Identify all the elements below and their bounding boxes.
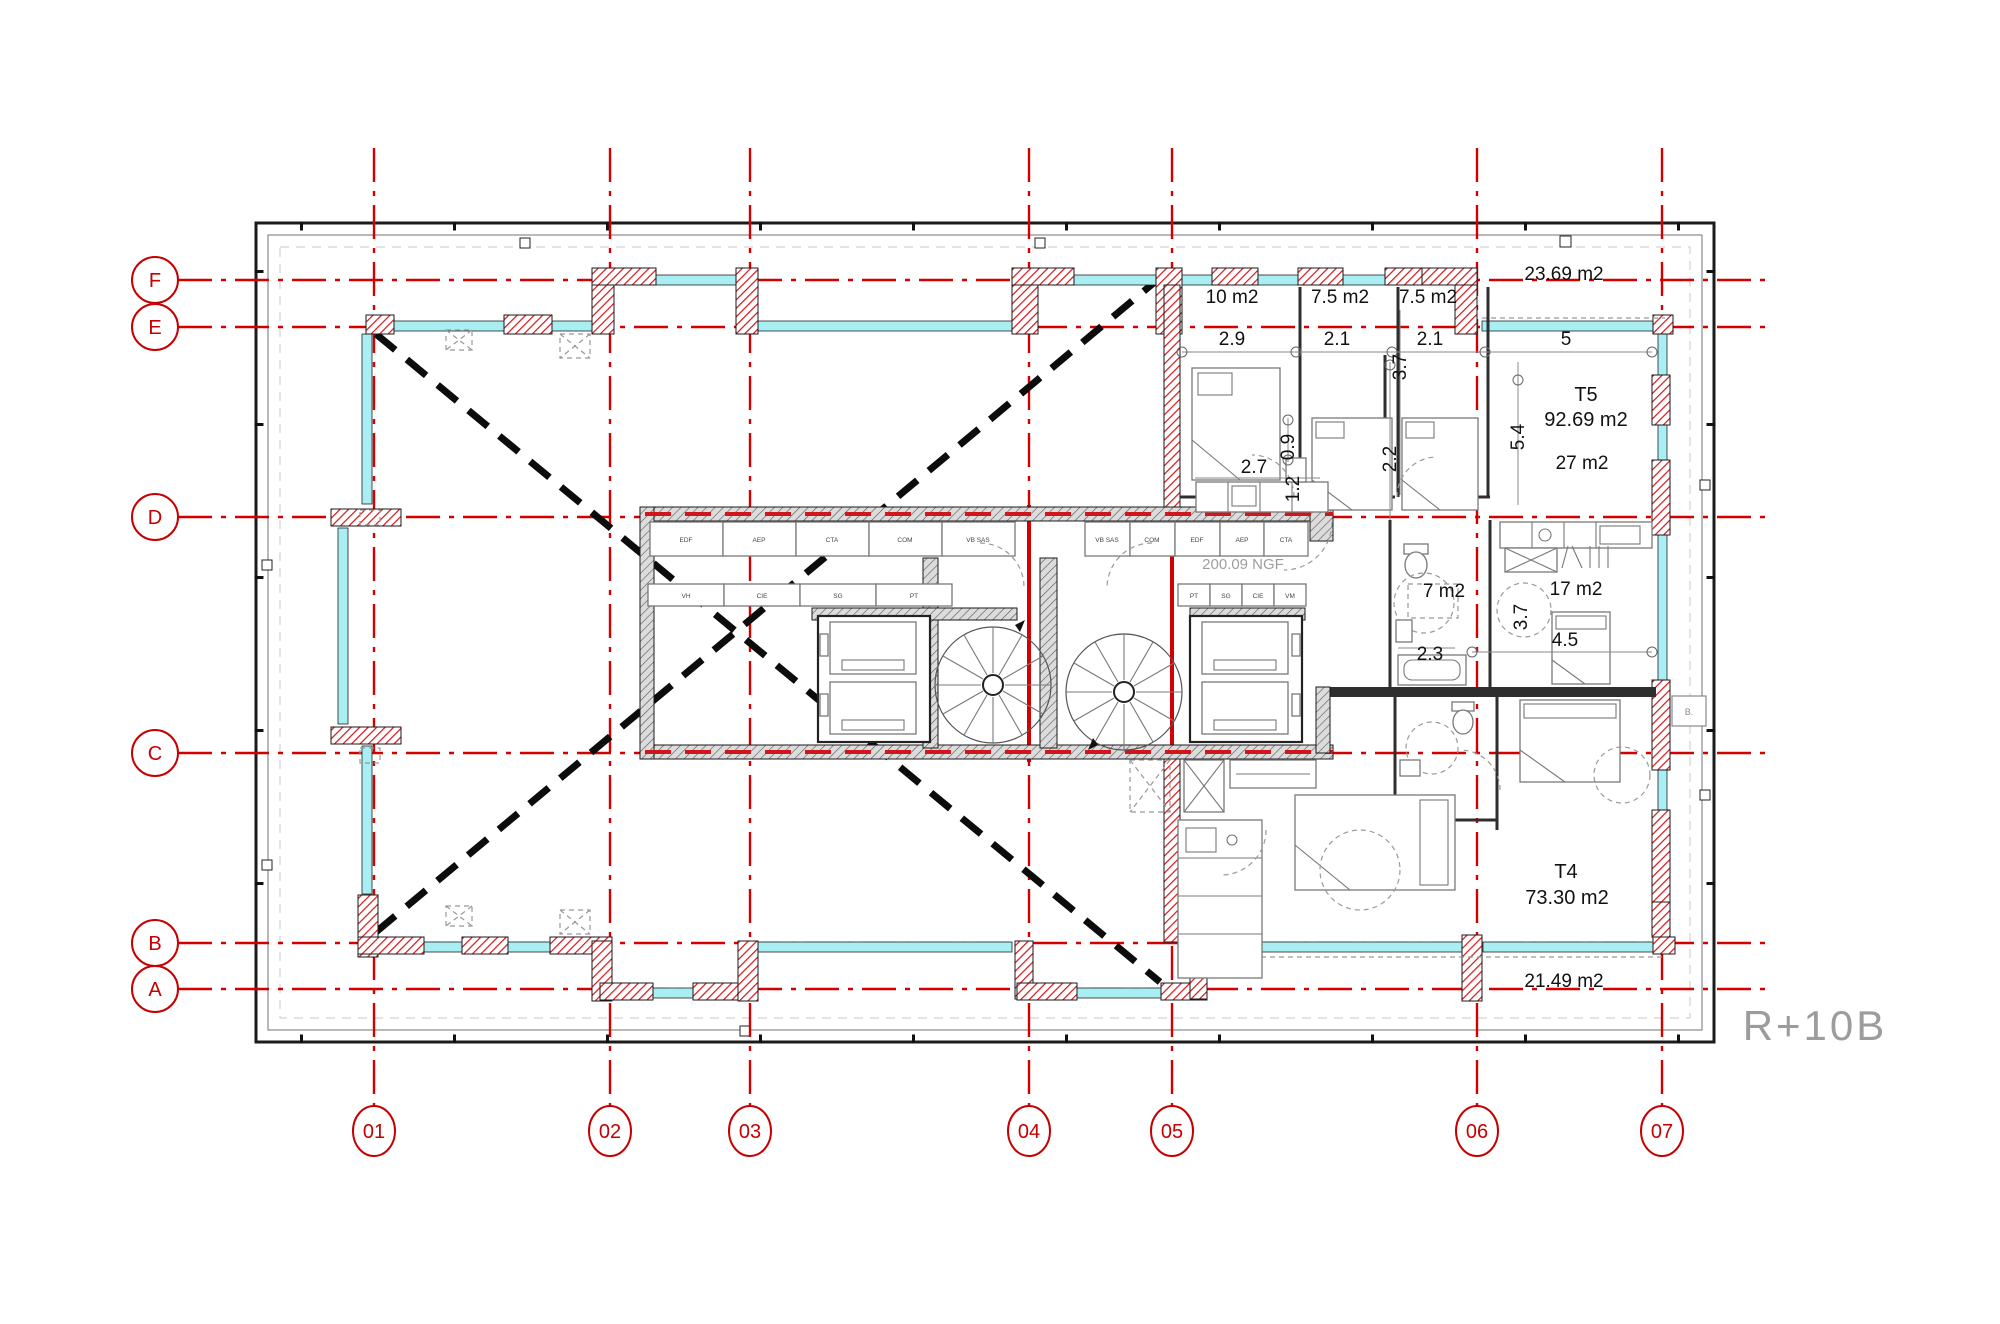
labels: 10 m2 7.5 m2 7.5 m2 23.69 m2 T5 92.69 m2… [1202,264,1887,1049]
elevator-bank-left [818,616,930,742]
room-label-terrace-south: 21.49 m2 [1524,971,1603,992]
duct-row1-right: VB SAS COM EDF AEP CTA [1085,522,1308,556]
dim-bathroom-w: 2.3 [1417,644,1443,665]
grid-col-label: 07 [1651,1121,1673,1143]
dim-bedroom-4-d: 3.7 [1511,604,1532,630]
duct-label: SG [1221,593,1230,600]
kitchen-counter-t5 [1500,522,1652,548]
grid-col-label: 06 [1466,1121,1488,1143]
bed-t4-main [1295,795,1455,890]
grid-row-label: C [148,743,162,765]
grid-bubble-col-05: 05 [1151,1106,1193,1156]
dim-living-h: 5.4 [1508,423,1529,450]
building-envelope [256,223,1714,1042]
duct-row2-right: PT SG CIE VM [1178,584,1306,606]
grid-col-label: 04 [1018,1121,1040,1143]
duct-label: CTA [1280,537,1293,544]
wardrobe-t5 [1505,546,1608,572]
room-label-bedroom-1: 10 m2 [1206,287,1259,308]
grid-bubble-col-02: 02 [589,1106,631,1156]
grid-bubble-col-04: 04 [1008,1106,1050,1156]
unit-label-t5: T5 [1574,384,1597,406]
duct-label: PT [1190,593,1198,600]
grid-row-label: B [148,933,161,955]
duct-label: CIE [757,593,769,600]
grid-bubble-row-e: E [132,304,178,350]
dim-living-w: 5 [1561,329,1572,350]
duct-label: VB SAS [1095,537,1119,544]
room-label-living: 27 m2 [1556,453,1609,474]
duct-label: VH [681,593,690,600]
dim-hall-h: 2.2 [1380,446,1401,472]
floor-plan: F E D C B A 01 02 [0,0,2000,1324]
grid-bubble-row-f: F [132,257,178,303]
grid-bubble-row-d: D [132,494,178,540]
dim-bedroom-3-h: 3.7 [1390,354,1411,380]
spiral-stair-left [935,620,1051,743]
dim-bedroom-1-w: 2.9 [1219,329,1245,350]
grid-row-label: D [148,507,162,529]
dim-kitchen-w: 2.7 [1241,457,1267,478]
duct-label: PT [910,593,918,600]
spiral-stair-right [1066,634,1182,750]
dim-entry-h: 0.9 [1278,434,1299,460]
grid-bubble-col-06: 06 [1456,1106,1498,1156]
level-note: 200.09 NGF [1202,556,1284,573]
grid-col-label: 05 [1161,1121,1183,1143]
bed-t4-second [1520,700,1620,782]
grid-row-label: A [148,979,162,1001]
unit-label-t4: T4 [1554,861,1577,883]
dim-bedroom-3-w: 2.1 [1417,329,1443,350]
duct-label: AEP [1235,537,1248,544]
duct-row2-left: VH CIE SG PT [648,584,952,606]
bathroom-t4-fixtures [1400,702,1474,776]
duct-label: CTA [826,537,839,544]
grid-bubble-col-01: 01 [353,1106,395,1156]
grid-row-label: F [149,270,161,292]
duct-label: COM [897,537,912,544]
dim-bedroom-4-w: 4.5 [1552,630,1578,651]
void-shaft-symbols [360,330,590,934]
duct-label: EDF [680,537,693,544]
exterior-shaft-b: B. [1672,696,1706,726]
room-label-bedroom-3: 7.5 m2 [1399,287,1457,308]
elevator-bank-right [1190,616,1302,742]
grid-col-label: 02 [599,1121,621,1143]
floor-title: R+10B [1743,1002,1888,1049]
shaft-label: B. [1685,707,1694,717]
dim-bedroom-2-w: 2.1 [1324,329,1350,350]
grid-col-label: 01 [363,1121,385,1143]
core: EDF AEP CTA COM VB SAS VB SAS COM EDF AE… [640,507,1333,759]
grid-row-label: E [148,317,161,339]
grid-bubble-row-b: B [132,920,178,966]
duct-label: VB SAS [966,537,990,544]
grid-bubble-col-03: 03 [729,1106,771,1156]
duct-row1-left: EDF AEP CTA COM VB SAS [650,522,1015,556]
unit-area-t5: 92.69 m2 [1544,409,1627,431]
room-label-bathroom: 7 m2 [1423,581,1465,602]
grid-bubble-row-c: C [132,730,178,776]
room-label-terrace-north: 23.69 m2 [1524,264,1603,285]
dim-closet-h: 1.2 [1283,476,1304,502]
mullion-squares [262,236,1710,1036]
duct-label: AEP [752,537,765,544]
grid-bubble-col-07: 07 [1641,1106,1683,1156]
duct-label: SG [833,593,842,600]
duct-label: VM [1285,593,1295,600]
floor-plan-sheet: F E D C B A 01 02 [0,0,2000,1324]
duct-label: CIE [1253,593,1265,600]
grid-bubble-row-a: A [132,966,178,1012]
duct-label: EDF [1191,537,1204,544]
unit-area-t4: 73.30 m2 [1525,887,1608,909]
window-walls [331,268,1675,1001]
room-label-bedroom-4: 17 m2 [1550,579,1603,600]
room-label-bedroom-2: 7.5 m2 [1311,287,1369,308]
grid-col-label: 03 [739,1121,761,1143]
